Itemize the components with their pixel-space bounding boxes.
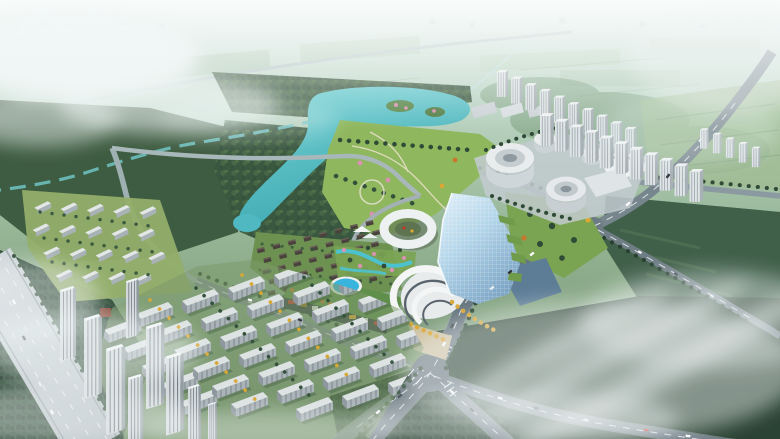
ring-courtyard: [395, 222, 421, 237]
drum-building: [546, 177, 586, 214]
aerial-rendering-canvas: [0, 0, 780, 439]
lake-end-pond: [233, 214, 261, 232]
drum-building: [486, 143, 534, 188]
aerial-rendering: [0, 0, 780, 439]
